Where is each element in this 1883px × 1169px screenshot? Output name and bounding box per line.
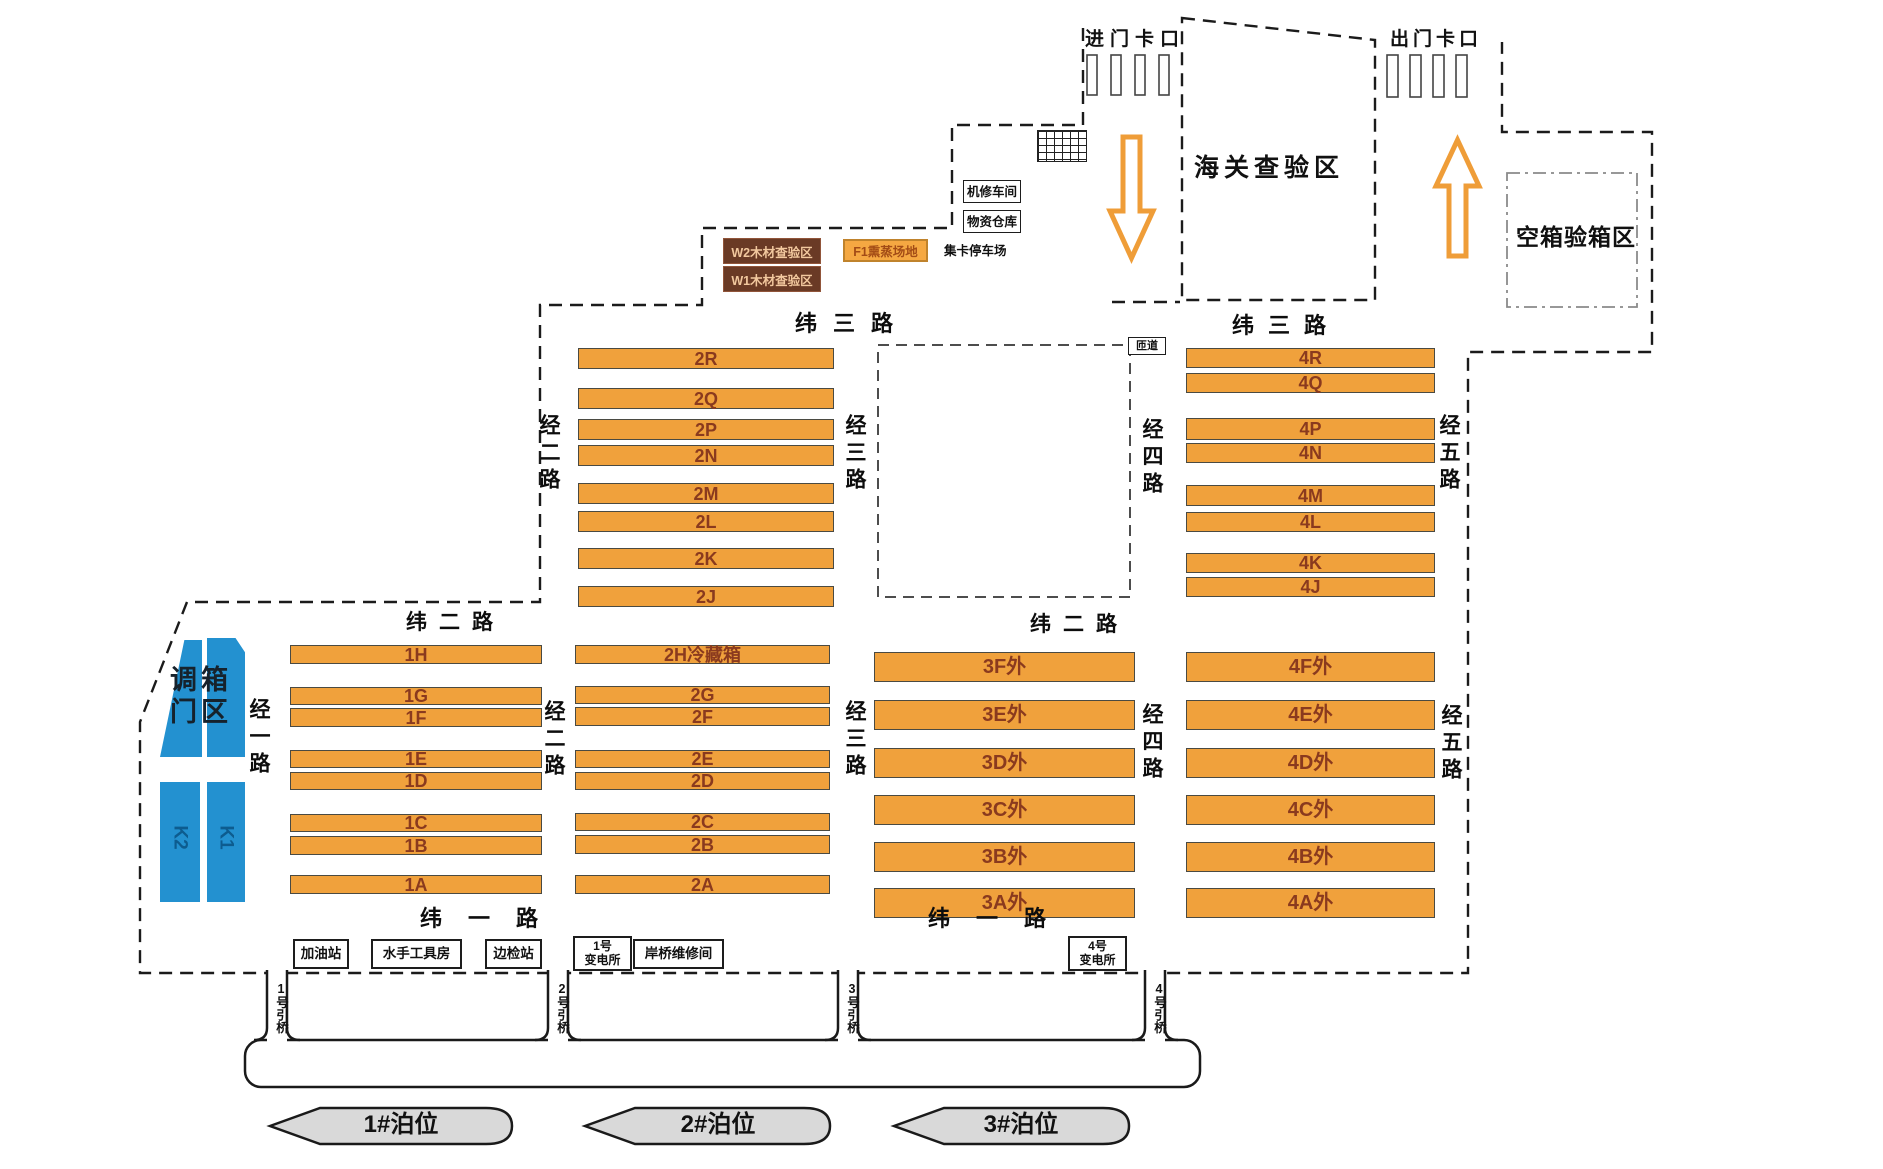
border-inspection-box: 边检站 [485, 939, 542, 969]
road-jing4-upper: 经四路 [1141, 418, 1162, 499]
yard-bar-block1-7: 1A [290, 875, 542, 894]
yard-bar-block1-4: 1D [290, 772, 542, 790]
customs-area-label: 海关查验区 [1194, 156, 1344, 181]
berth-3-label: 3#泊位 [951, 1113, 1091, 1137]
empty-box-area-label: 空箱验箱区 [1516, 226, 1636, 249]
yard-bar-block2_upper-2: 2P [578, 419, 834, 440]
k1-bar-label: K1 [217, 816, 236, 860]
road-jing3-lower: 经三路 [844, 700, 865, 781]
road-jing5-upper: 经五路 [1438, 414, 1459, 495]
yard-bar-block4_lower-1: 4E外 [1186, 700, 1435, 730]
yard-bar-block2_upper-4: 2M [578, 483, 834, 504]
road-jing3-upper: 经三路 [844, 414, 865, 495]
yard-bar-block1-5: 1C [290, 814, 542, 832]
yard-bar-block2_upper-3: 2N [578, 445, 834, 466]
yard-bar-block3-3: 3C外 [874, 795, 1135, 825]
yard-bar-block2_lower-4: 2D [575, 772, 830, 790]
outbound-arrow-icon [1436, 140, 1479, 256]
yard-bar-block2_lower-2: 2F [575, 707, 830, 726]
yard-bar-block4_lower-0: 4F外 [1186, 652, 1435, 682]
yard-bar-block2_upper-0: 2R [578, 348, 834, 369]
terminal-yard-diagram: 2R2Q2P2N2M2L2K2J4R4Q4P4N4M4L4K4J1H1G1F1E… [0, 0, 1883, 1169]
yard-bar-block1-3: 1E [290, 750, 542, 768]
k2-bar-label: K2 [171, 816, 190, 860]
yard-bar-block3-2: 3D外 [874, 748, 1135, 778]
yard-bar-block4_upper-0: 4R [1186, 348, 1435, 368]
ramp-box: 匝道 [1128, 337, 1166, 355]
yard-bar-block4_upper-2: 4P [1186, 418, 1435, 440]
yard-bar-block2_upper-7: 2J [578, 586, 834, 607]
entry-lane-booths [1087, 55, 1169, 95]
crane-repair-box: 岸桥维修间 [633, 939, 724, 969]
yard-bar-block4_upper-7: 4J [1186, 577, 1435, 597]
road-jing5-lower: 经五路 [1440, 704, 1461, 785]
yard-bar-block2_lower-7: 2A [575, 875, 830, 894]
substation-1-box: 1号 变电所 [573, 936, 632, 971]
yard-bar-block4_lower-5: 4A外 [1186, 888, 1435, 918]
yard-bar-block4_lower-2: 4D外 [1186, 748, 1435, 778]
bridge-2-label: 2号引桥 [548, 977, 568, 1039]
inbound-arrow-icon [1110, 137, 1153, 258]
yard-bar-block1-2: 1F [290, 708, 542, 727]
yard-bar-block4_upper-3: 4N [1186, 443, 1435, 463]
yard-bar-block4_upper-1: 4Q [1186, 373, 1435, 393]
gas-station-box: 加油站 [293, 939, 349, 969]
yard-bar-block2_lower-3: 2E [575, 750, 830, 768]
yard-bar-block2_lower-0: 2H冷藏箱 [575, 645, 830, 664]
timber-inspection-w2-box: W2木材查验区 [723, 238, 821, 264]
yard-bar-block2_lower-6: 2B [575, 835, 830, 854]
yard-bar-block4_lower-3: 4C外 [1186, 795, 1435, 825]
yard-bar-block2_upper-1: 2Q [578, 388, 834, 409]
yard-bar-block1-6: 1B [290, 836, 542, 855]
quay-apron [245, 1040, 1200, 1087]
bridge-1-label: 1号引桥 [267, 977, 287, 1039]
road-wei3-right: 纬三路 [1232, 315, 1340, 337]
yard-bar-block1-0: 1H [290, 645, 542, 664]
berth-1-label: 1#泊位 [331, 1113, 471, 1137]
yard-bar-block2_upper-6: 2K [578, 548, 834, 569]
truck-parking-label: 集卡停车场 [944, 245, 1007, 258]
road-wei1-right: 纬一路 [928, 908, 1072, 930]
road-wei3-left: 纬三路 [795, 313, 909, 335]
road-jing2-lower: 经二路 [543, 700, 564, 781]
yard-bar-block3-1: 3E外 [874, 700, 1135, 730]
yard-bar-block4_lower-4: 4B外 [1186, 842, 1435, 872]
road-wei1-left: 纬一路 [420, 908, 564, 930]
yard-bar-block4_upper-5: 4L [1186, 512, 1435, 532]
road-jing4-lower: 经四路 [1141, 703, 1162, 784]
yard-bar-block3-0: 3F外 [874, 652, 1135, 682]
road-wei2-right: 纬二路 [1030, 614, 1129, 635]
approach-bridges [254, 970, 1178, 1042]
yard-bar-block2_lower-1: 2G [575, 686, 830, 704]
fumigation-f1-box: F1熏蒸场地 [843, 239, 928, 262]
machine-repair-box: 机修车间 [963, 180, 1021, 203]
bridge-3-label: 3号引桥 [838, 977, 858, 1039]
berth-2-label: 2#泊位 [648, 1113, 788, 1137]
yard-bar-block4_upper-6: 4K [1186, 553, 1435, 573]
grid-hatch-area [1037, 130, 1087, 162]
yard-bar-block3-4: 3B外 [874, 842, 1135, 872]
sailor-toolroom-box: 水手工具房 [371, 939, 462, 969]
substation-4-box: 4号 变电所 [1068, 936, 1127, 971]
timber-inspection-w1-box: W1木材查验区 [723, 266, 821, 292]
exit-lane-booths [1387, 55, 1467, 97]
exit-gate-label: 出门卡口 [1390, 30, 1482, 49]
materials-warehouse-box: 物资仓库 [963, 210, 1021, 233]
road-jing2-upper: 经二路 [538, 414, 559, 495]
yard-bar-block2_lower-5: 2C [575, 813, 830, 831]
yard-bar-block2_upper-5: 2L [578, 511, 834, 532]
road-wei2-left: 纬二路 [406, 612, 505, 633]
road-jing1: 经一路 [248, 698, 269, 779]
yard-bar-block4_upper-4: 4M [1186, 485, 1435, 506]
entry-gate-label: 进门卡口 [1085, 30, 1185, 49]
bridge-4-label: 4号引桥 [1145, 977, 1165, 1039]
adjust-zone-label: 调箱门区 [170, 664, 236, 729]
yard-bar-block1-1: 1G [290, 687, 542, 705]
reserved-area-border [878, 345, 1130, 597]
